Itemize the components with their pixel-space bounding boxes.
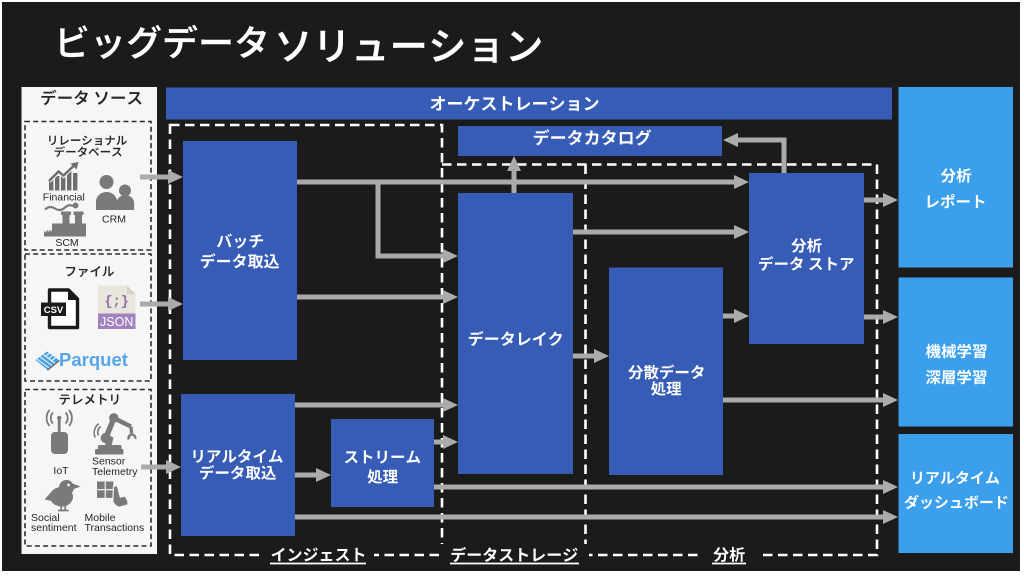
svg-text:Parquet: Parquet <box>59 349 128 370</box>
svg-text:CRM: CRM <box>102 214 126 226</box>
svg-text:Financial: Financial <box>43 192 85 204</box>
svg-text:{;}: {;} <box>105 295 129 310</box>
svg-text:sentiment: sentiment <box>31 522 77 534</box>
svg-text:Telemetry: Telemetry <box>92 466 138 478</box>
svg-text:Transactions: Transactions <box>85 522 145 534</box>
svg-text:IoT: IoT <box>53 465 69 477</box>
svg-text:CSV: CSV <box>44 305 64 316</box>
svg-text:JSON: JSON <box>100 315 133 329</box>
svg-text:SCM: SCM <box>55 237 78 249</box>
